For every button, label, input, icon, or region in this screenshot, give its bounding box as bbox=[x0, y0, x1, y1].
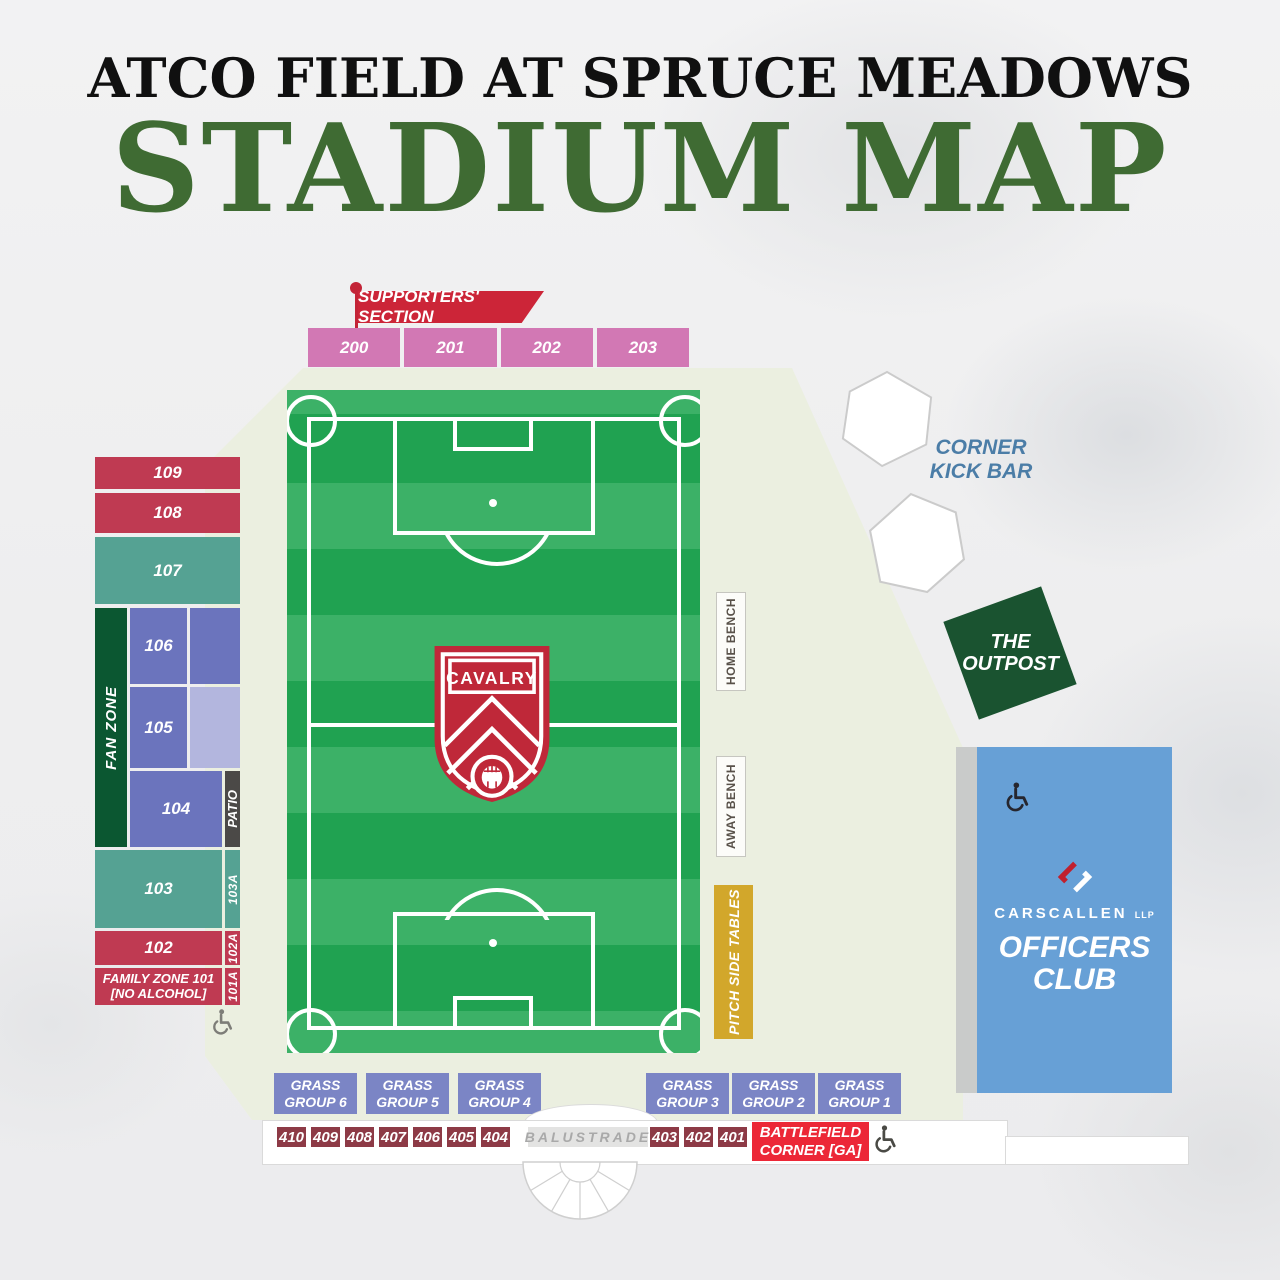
patio-label: PATIO bbox=[225, 790, 240, 828]
corner-arc-nw bbox=[287, 395, 337, 447]
section-200[interactable]: 200 bbox=[308, 328, 400, 367]
section-106[interactable]: 106 bbox=[130, 608, 187, 684]
section-106-overflow[interactable] bbox=[190, 608, 240, 684]
home-bench: HOME BENCH bbox=[716, 592, 746, 691]
section-107[interactable]: 107 bbox=[95, 537, 240, 604]
section-201[interactable]: 201 bbox=[404, 328, 496, 367]
section-108[interactable]: 108 bbox=[95, 493, 240, 533]
section-103a[interactable]: 103A bbox=[225, 850, 240, 928]
stair-fan bbox=[521, 1161, 639, 1221]
officers-club-walkway bbox=[956, 747, 977, 1093]
grass-group-2[interactable]: GRASS GROUP 2 bbox=[732, 1073, 815, 1114]
carscallen-logo bbox=[1057, 859, 1093, 895]
section-401[interactable]: 401 bbox=[718, 1127, 747, 1147]
corner-kick-bar-label: CORNER KICK BAR bbox=[898, 436, 1064, 484]
section-103[interactable]: 103 bbox=[95, 850, 222, 928]
section-407[interactable]: 407 bbox=[379, 1127, 408, 1147]
section-102[interactable]: 102 bbox=[95, 931, 222, 965]
corner-arc-sw bbox=[287, 1008, 337, 1053]
penalty-spot-south bbox=[489, 939, 497, 947]
grass-group-1[interactable]: GRASS GROUP 1 bbox=[818, 1073, 901, 1114]
goal-area-north bbox=[453, 417, 533, 451]
section-404[interactable]: 404 bbox=[481, 1127, 510, 1147]
officers-club-label: OFFICERS CLUB bbox=[977, 932, 1172, 997]
supporters-section-banner: SUPPORTERS' SECTION bbox=[358, 291, 544, 323]
section-203[interactable]: 203 bbox=[597, 328, 689, 367]
section-405[interactable]: 405 bbox=[447, 1127, 476, 1147]
away-bench: AWAY BENCH bbox=[716, 756, 746, 857]
cavalry-crest: CAVALRY bbox=[430, 644, 554, 804]
penalty-spot-north bbox=[489, 499, 497, 507]
section-101-family-zone[interactable]: FAMILY ZONE 101 [NO ALCOHOL] bbox=[95, 968, 222, 1005]
wheelchair-icon-west bbox=[210, 1008, 238, 1036]
grass-group-5[interactable]: GRASS GROUP 5 bbox=[366, 1073, 449, 1114]
goal-area-south bbox=[453, 996, 533, 1030]
section-409[interactable]: 409 bbox=[311, 1127, 340, 1147]
section-102a[interactable]: 102A bbox=[225, 931, 240, 965]
fan-zone[interactable]: FAN ZONE bbox=[95, 608, 127, 847]
fan-zone-label: FAN ZONE bbox=[103, 686, 120, 770]
patio[interactable]: PATIO bbox=[225, 771, 240, 847]
section-403[interactable]: 403 bbox=[650, 1127, 679, 1147]
south-concourse-east bbox=[1005, 1136, 1189, 1165]
section-104[interactable]: 104 bbox=[130, 771, 222, 847]
section-105[interactable]: 105 bbox=[130, 687, 187, 768]
section-406[interactable]: 406 bbox=[413, 1127, 442, 1147]
grass-group-6[interactable]: GRASS GROUP 6 bbox=[274, 1073, 357, 1114]
section-202[interactable]: 202 bbox=[501, 328, 593, 367]
balustrade: BALUSTRADE bbox=[528, 1127, 648, 1147]
officers-club[interactable]: CARSCALLEN LLP OFFICERS CLUB bbox=[977, 747, 1172, 1093]
section-408[interactable]: 408 bbox=[345, 1127, 374, 1147]
section-109[interactable]: 109 bbox=[95, 457, 240, 489]
section-105-overflow[interactable] bbox=[190, 687, 240, 768]
section-402[interactable]: 402 bbox=[684, 1127, 713, 1147]
wheelchair-icon-officers-club bbox=[1003, 781, 1035, 813]
grass-group-3[interactable]: GRASS GROUP 3 bbox=[646, 1073, 729, 1114]
outpost-label: THE OUTPOST bbox=[962, 631, 1059, 676]
section-101a[interactable]: 101A bbox=[225, 968, 240, 1005]
supporters-sections-row: 200 201 202 203 bbox=[308, 328, 689, 367]
corner-kick-bar-hexagon-2[interactable] bbox=[866, 492, 968, 594]
crest-wordmark: CAVALRY bbox=[446, 668, 538, 688]
grass-group-4[interactable]: GRASS GROUP 4 bbox=[458, 1073, 541, 1114]
pitch-side-tables[interactable]: PITCH SIDE TABLES bbox=[714, 885, 753, 1039]
wheelchair-icon-south bbox=[872, 1124, 902, 1154]
page-title: STADIUM MAP bbox=[0, 96, 1280, 240]
battlefield-corner-ga[interactable]: BATTLEFIELD CORNER [GA] bbox=[752, 1122, 869, 1161]
section-410[interactable]: 410 bbox=[277, 1127, 306, 1147]
officers-club-sponsor: CARSCALLEN LLP bbox=[977, 905, 1172, 922]
